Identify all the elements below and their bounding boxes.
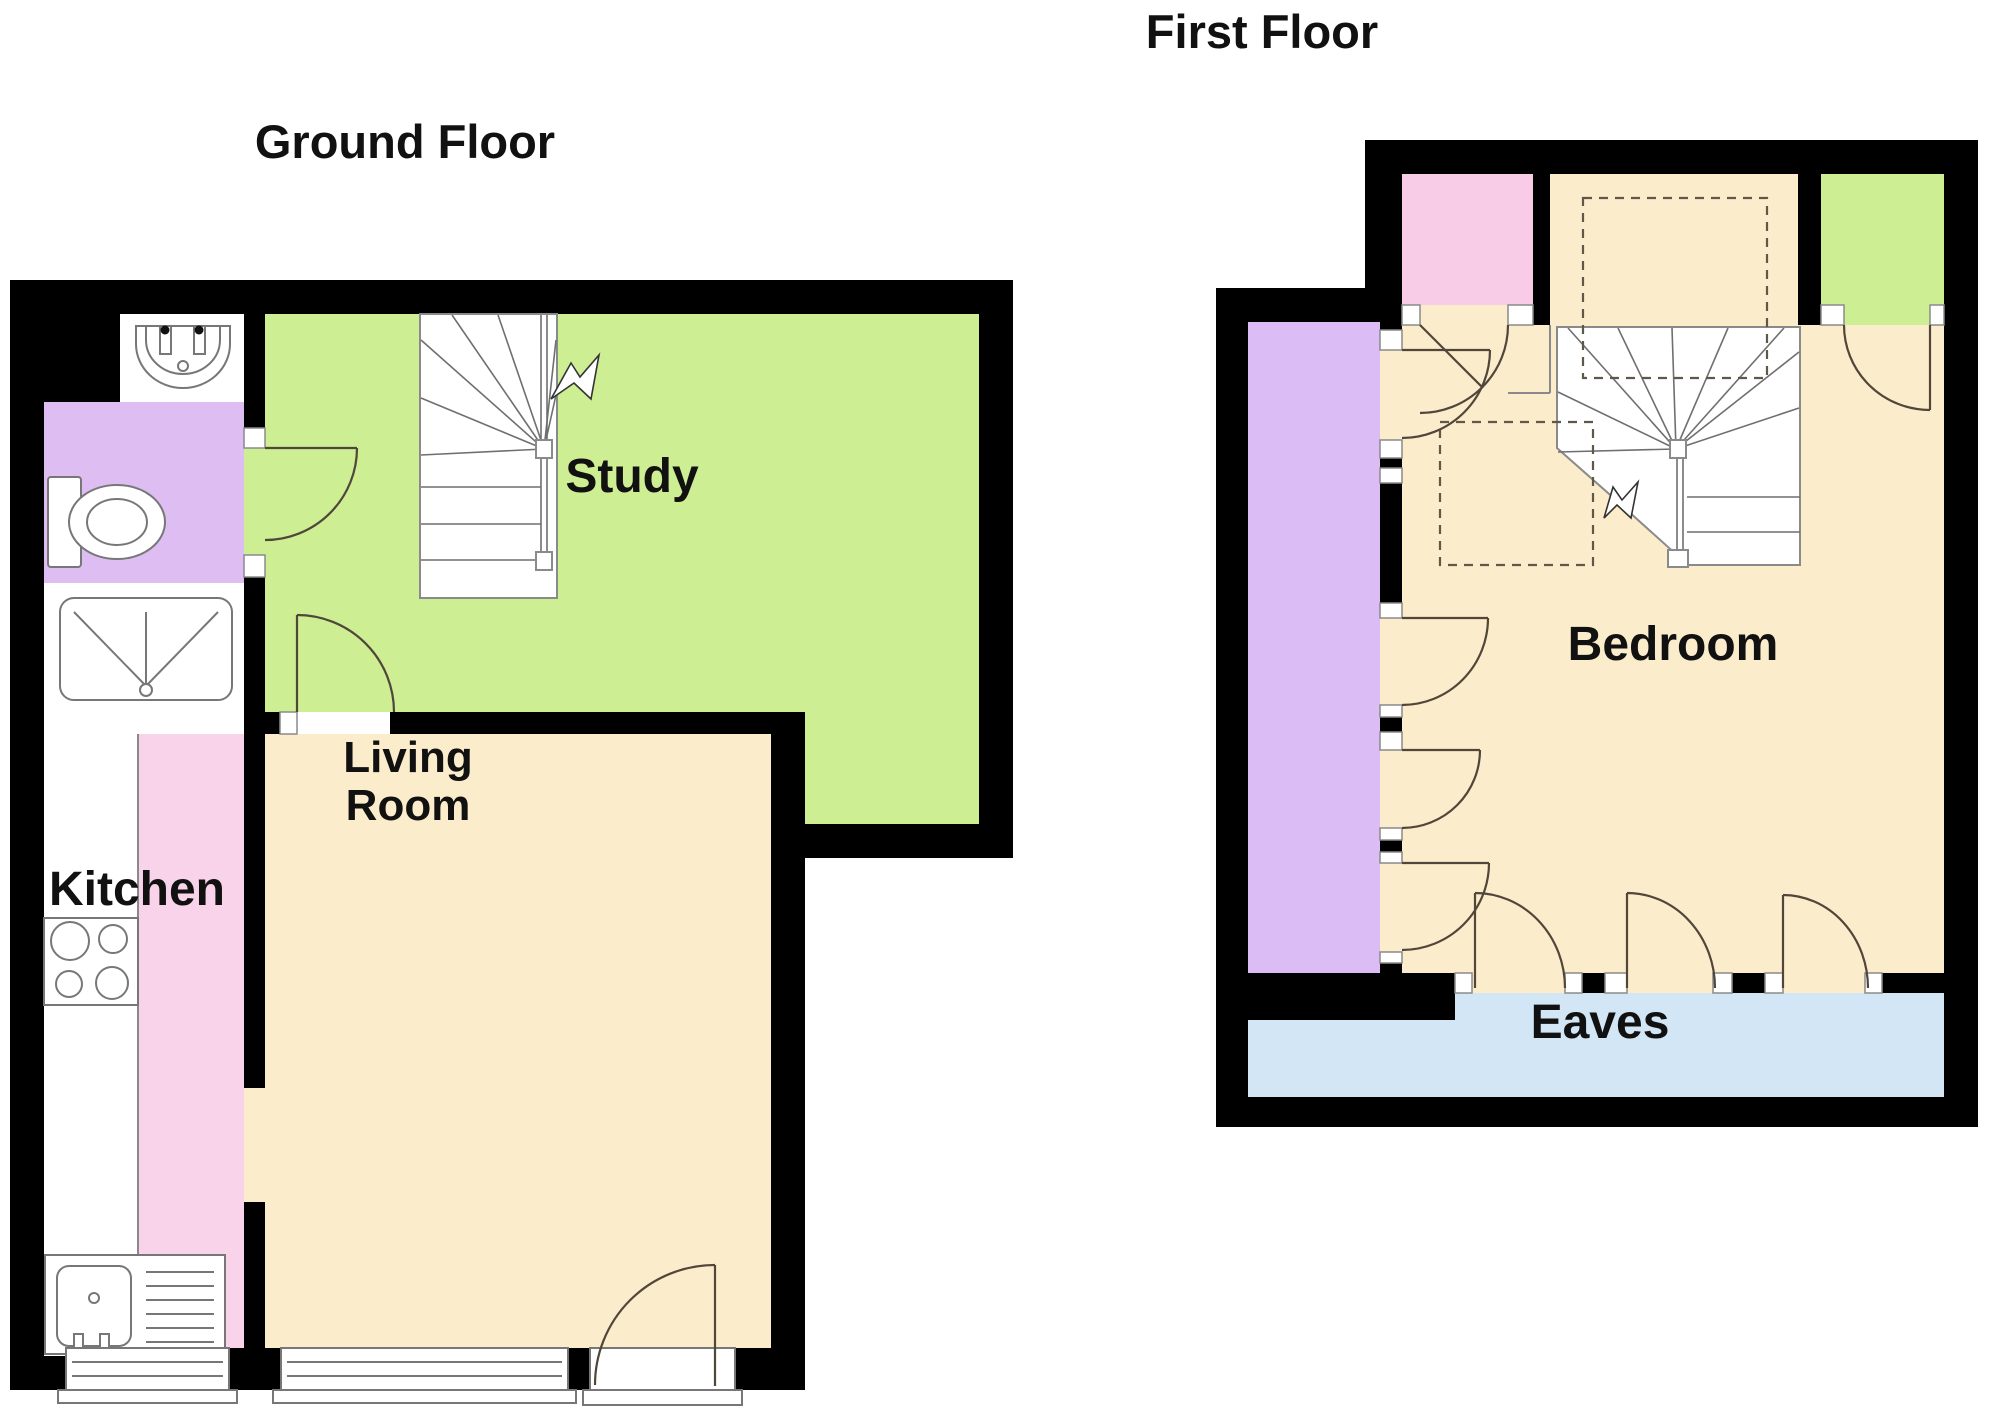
wall-segment	[1365, 174, 1402, 322]
door-jamb	[1380, 440, 1402, 458]
newel-post	[1670, 440, 1686, 458]
ground-floor-title: Ground Floor	[255, 115, 555, 168]
door-jamb	[244, 428, 265, 448]
door-jamb	[1380, 468, 1402, 483]
wall-segment	[244, 314, 265, 428]
door-jamb	[1380, 330, 1402, 350]
wall-segment	[1248, 973, 1455, 1020]
door-jamb	[1765, 973, 1783, 993]
wall-segment	[244, 712, 280, 734]
wall-segment	[44, 314, 120, 402]
door-jamb	[1821, 305, 1844, 325]
door-jamb	[1508, 305, 1533, 325]
entrance-threshold	[583, 1348, 742, 1405]
wall-segment	[244, 734, 265, 1088]
ground-floor-plan: Ground Floor Study Kitchen Living Room	[10, 115, 1013, 1405]
eaves-label: Eaves	[1531, 996, 1670, 1049]
door-jamb	[244, 555, 265, 577]
wall-segment	[1380, 840, 1402, 852]
living-room-label-line2: Room	[346, 781, 471, 830]
door-jamb	[1380, 852, 1402, 863]
newel-post	[536, 552, 552, 570]
bedroom-label: Bedroom	[1568, 618, 1779, 671]
living-room-label-line1: Living	[343, 733, 473, 782]
wall-segment	[735, 1348, 805, 1390]
door-jamb	[1605, 973, 1627, 993]
door-jamb	[1930, 305, 1944, 325]
window-icon	[273, 1348, 576, 1403]
wall-segment	[1380, 717, 1402, 732]
wall-segment	[1533, 174, 1550, 325]
wall-segment	[244, 577, 265, 712]
floorplan-drawing: Ground Floor Study Kitchen Living Room	[0, 0, 1992, 1409]
study-label: Study	[565, 450, 699, 503]
door-jamb	[1380, 828, 1402, 840]
floorplan-page: Ground Floor Study Kitchen Living Room	[0, 0, 1992, 1409]
window-icon	[58, 1348, 237, 1403]
door-jamb	[1380, 603, 1402, 618]
shower-tray-icon	[60, 598, 232, 700]
wall-segment	[1798, 174, 1821, 325]
wall-segment	[1380, 963, 1402, 973]
wall-segment	[771, 712, 805, 858]
door-jamb	[1380, 732, 1402, 750]
door-jamb	[1565, 973, 1582, 993]
kitchen-sink-icon	[45, 1255, 225, 1356]
wall-segment	[1380, 483, 1402, 603]
wall-segment	[229, 1348, 281, 1390]
newel-post	[536, 440, 552, 458]
wall-segment	[568, 1348, 590, 1390]
door-jamb	[1455, 973, 1472, 993]
door-jamb	[280, 712, 297, 734]
wall-segment	[1380, 458, 1402, 468]
door-jamb	[1380, 705, 1402, 717]
first-green-room-area	[1821, 174, 1944, 325]
wall-segment	[244, 1202, 265, 1348]
first-floor-plan: First Floor Bedroom Eaves	[1146, 5, 1978, 1127]
wall-segment	[390, 712, 805, 734]
wall-segment	[1732, 973, 1765, 993]
door-jamb	[1402, 305, 1420, 325]
first-purple-area	[1248, 322, 1380, 973]
first-floor-title: First Floor	[1146, 5, 1378, 58]
wall-segment	[1380, 322, 1402, 330]
newel-post	[1668, 550, 1688, 567]
wall-segment	[1882, 973, 1944, 993]
living-room-area	[244, 734, 771, 1356]
kitchen-label: Kitchen	[49, 863, 225, 916]
first-pink-room-area	[1402, 174, 1533, 305]
hob-icon	[44, 918, 138, 1005]
wall-segment	[1582, 973, 1605, 993]
door-jamb	[1380, 952, 1402, 963]
